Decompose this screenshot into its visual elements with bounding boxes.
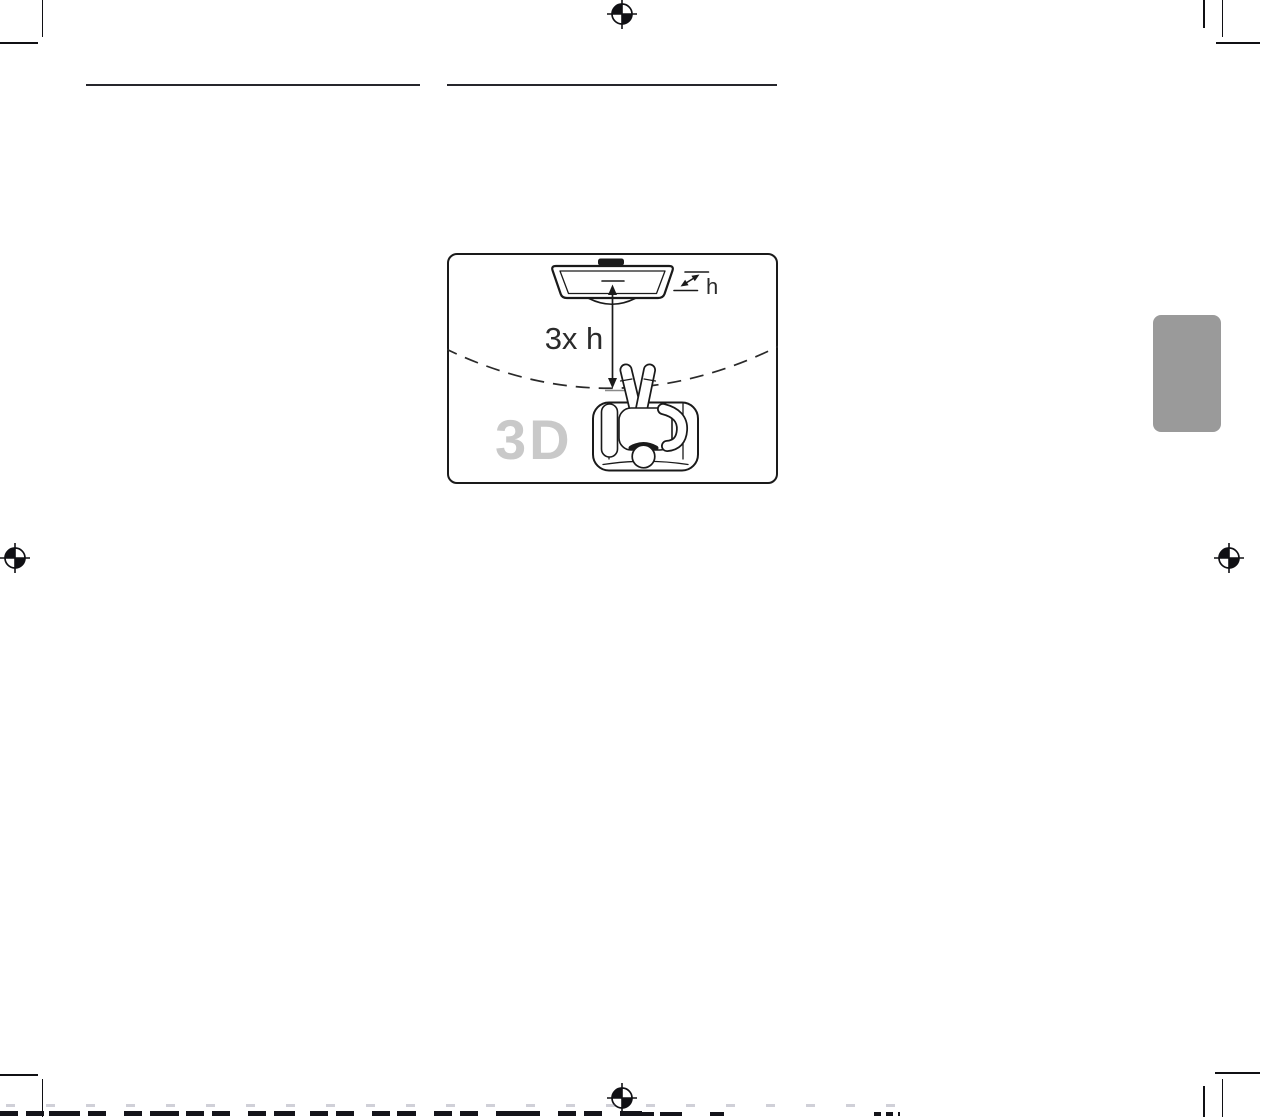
viewer-left-arm <box>602 404 618 457</box>
crop-mark-bottom-right-vertical-outer <box>1222 1079 1224 1117</box>
section-tab <box>1153 315 1221 432</box>
heading-rule-right-column <box>447 84 777 86</box>
tv-wall-mount <box>598 259 624 266</box>
distance-arrowhead-down <box>608 378 617 389</box>
registration-mark-icon <box>605 1081 639 1115</box>
viewing-distance-diagram: 3D h <box>447 253 778 484</box>
heading-rule-left-column <box>86 84 420 86</box>
3d-watermark-label: 3D <box>495 408 573 471</box>
bottom-faint-print-specks <box>6 1104 906 1107</box>
height-arrowhead-down <box>681 280 689 287</box>
crop-mark-top-right-horizontal <box>1216 42 1260 44</box>
crop-mark-bottom-left-horizontal <box>0 1074 38 1076</box>
viewer-in-chair-icon <box>593 370 698 471</box>
manual-print-page: 3D h <box>0 0 1264 1117</box>
registration-mark-icon <box>1212 541 1246 575</box>
crop-mark-top-right-vertical-inner <box>1203 0 1205 28</box>
screen-height-label: h <box>706 274 718 299</box>
crop-mark-top-left-horizontal <box>0 42 38 44</box>
crop-mark-bottom-right-vertical-inner <box>1203 1086 1205 1117</box>
viewing-distance-diagram-canvas: 3D h <box>447 253 778 484</box>
crop-mark-top-right-vertical-outer <box>1222 0 1224 37</box>
registration-mark-icon <box>0 541 32 575</box>
viewer-head <box>632 445 655 468</box>
viewing-distance-label: 3x h <box>545 321 604 356</box>
crop-mark-top-left-vertical <box>42 0 44 37</box>
screen-height-dimension <box>674 272 709 291</box>
bottom-cutoff-text-fragments-left <box>0 1111 642 1116</box>
crop-mark-bottom-right-horizontal <box>1215 1072 1260 1074</box>
height-arrowhead-up <box>691 275 699 282</box>
distance-arrowhead-up <box>608 285 617 296</box>
bottom-cutoff-text-fragments-mid <box>640 1112 726 1116</box>
bottom-cutoff-text-fragments-right <box>874 1112 900 1116</box>
registration-mark-icon <box>605 0 639 31</box>
